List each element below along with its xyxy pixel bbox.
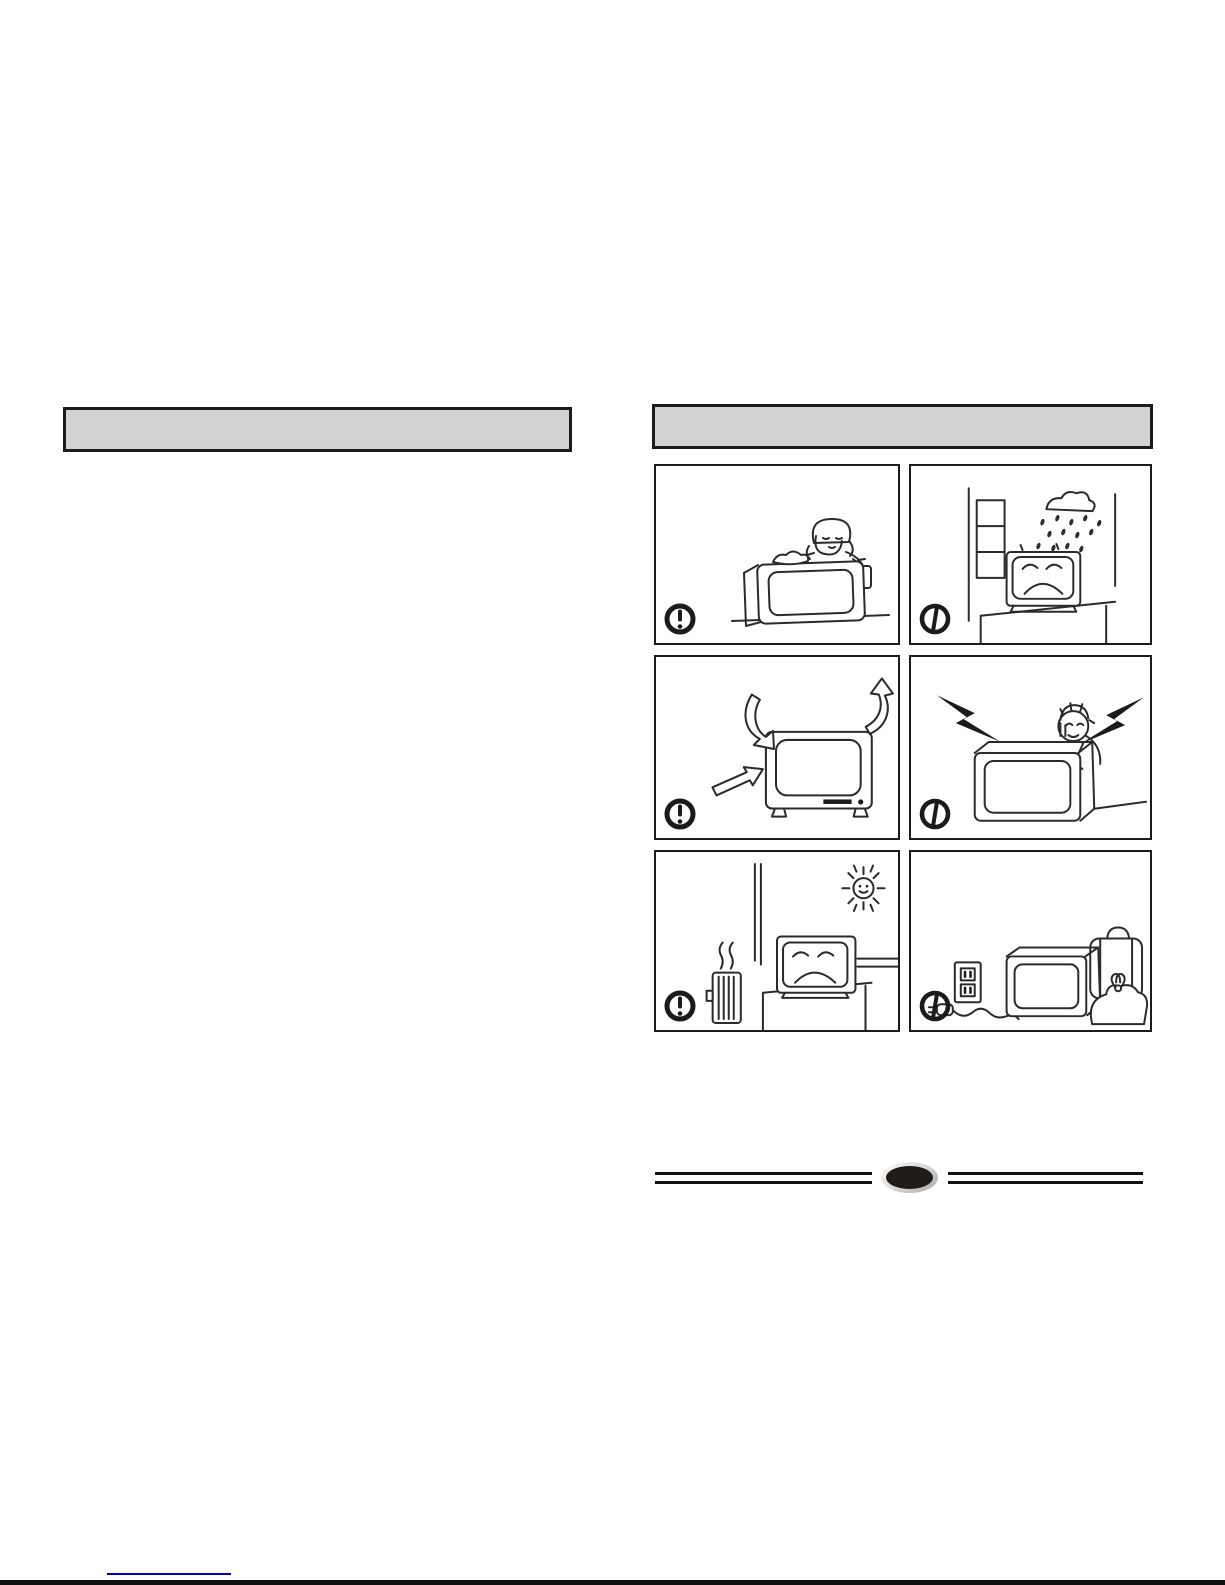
page-number-badge xyxy=(881,1162,938,1193)
prohibition-icon xyxy=(918,989,952,1023)
caution-exclamation-icon xyxy=(663,989,697,1023)
manual-page xyxy=(0,0,1225,1585)
panel-ventilation-airflow xyxy=(654,655,900,840)
left-section-header-bar xyxy=(63,407,572,452)
footer-right-double-rule xyxy=(948,1172,1143,1184)
page-number-label xyxy=(886,1166,933,1189)
rule-line xyxy=(948,1172,1143,1175)
panel-rain-through-window xyxy=(909,464,1152,645)
prohibition-icon xyxy=(918,797,952,831)
rule-line xyxy=(655,1172,872,1175)
prohibition-icon xyxy=(918,602,952,636)
panel-electric-shock xyxy=(909,655,1152,840)
caution-exclamation-icon xyxy=(663,797,697,831)
page-bottom-edge xyxy=(0,1580,1225,1585)
panel-wipe-clean-tv xyxy=(654,464,900,645)
safety-illustration-grid xyxy=(654,464,1152,1032)
caution-exclamation-icon xyxy=(663,602,697,636)
rule-line xyxy=(948,1181,1143,1184)
panel-unplug-when-away xyxy=(909,850,1152,1032)
panel-heat-and-sunlight xyxy=(654,850,900,1032)
footer-hyperlink-underline[interactable] xyxy=(107,1573,231,1575)
rule-line xyxy=(655,1181,872,1184)
right-section-header-bar xyxy=(652,404,1153,449)
footer-left-double-rule xyxy=(655,1172,872,1184)
